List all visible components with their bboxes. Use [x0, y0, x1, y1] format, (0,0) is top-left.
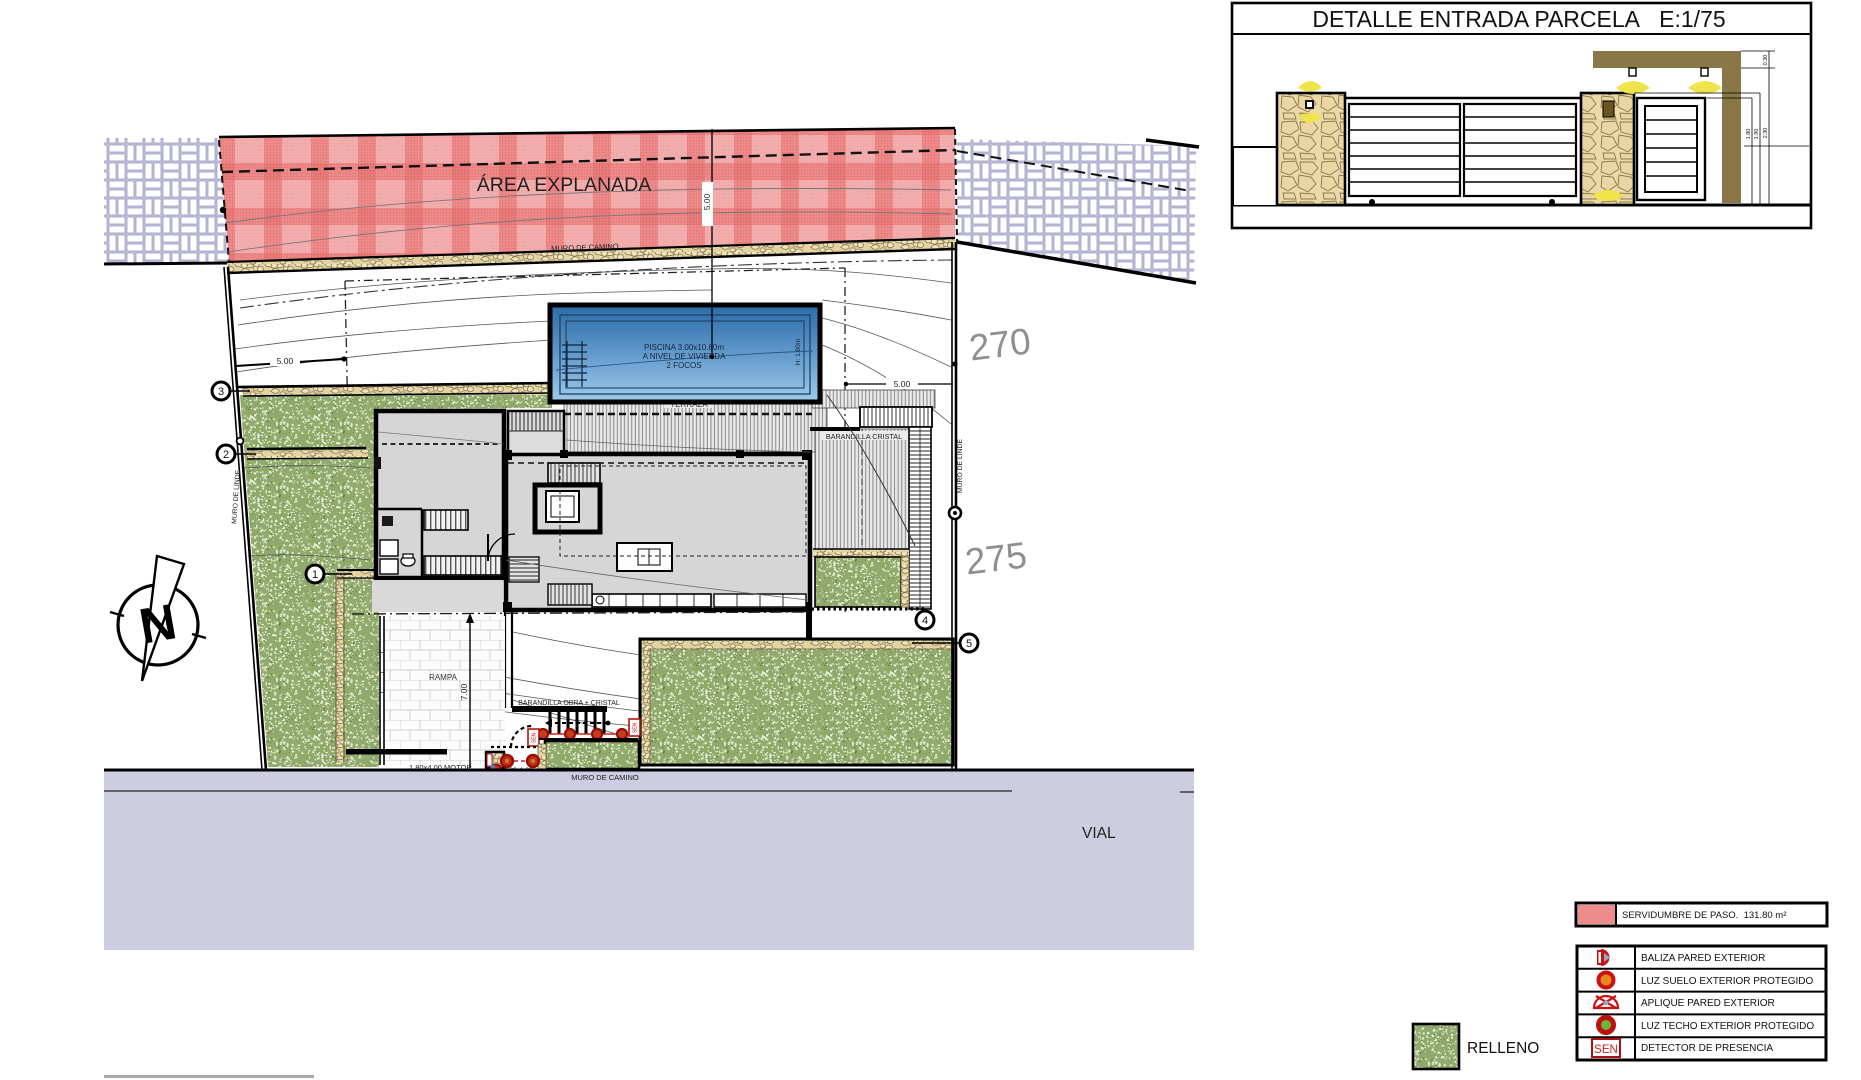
svg-text:270: 270	[967, 320, 1033, 368]
svg-text:7.00: 7.00	[459, 683, 469, 700]
svg-text:MURO DE LINDE: MURO DE LINDE	[231, 469, 242, 524]
svg-text:1.90: 1.90	[1754, 129, 1760, 140]
svg-text:H: 1.80m: H: 1.80m	[795, 339, 802, 365]
svg-text:DETALLE ENTRADA PARCELA E:1/: DETALLE ENTRADA PARCELA E:1/75	[1312, 6, 1725, 32]
svg-text:RELLENO: RELLENO	[1467, 1040, 1539, 1057]
svg-text:BALIZA PARED EXTERIOR: BALIZA PARED EXTERIOR	[1641, 953, 1765, 964]
svg-text:5.00: 5.00	[702, 193, 712, 210]
svg-text:SEN: SEN	[633, 722, 639, 733]
svg-text:BARANDILLA OBRA + CRISTAL: BARANDILLA OBRA + CRISTAL	[518, 700, 620, 707]
svg-text:RAMPA: RAMPA	[429, 673, 458, 682]
svg-text:0.30: 0.30	[1763, 55, 1769, 66]
svg-text:275: 275	[963, 534, 1029, 582]
svg-text:VIAL: VIAL	[1082, 825, 1116, 842]
svg-text:2.30: 2.30	[1763, 128, 1769, 139]
svg-text:MURO DE LINDE: MURO DE LINDE	[957, 439, 964, 493]
svg-text:SEN: SEN	[1594, 1044, 1618, 1056]
svg-text:BARANDILLA CRISTAL: BARANDILLA CRISTAL	[826, 432, 902, 441]
svg-text:SERVIDUMBRE DE PASO. 131.80 m: SERVIDUMBRE DE PASO. 131.80 m²	[1622, 910, 1786, 921]
svg-text:SEN: SEN	[532, 732, 538, 743]
svg-text:1.80: 1.80	[1746, 129, 1752, 140]
svg-text:5.00: 5.00	[894, 379, 911, 389]
svg-text:2: 2	[223, 449, 229, 461]
svg-text:3: 3	[218, 386, 224, 398]
svg-text:5: 5	[966, 638, 972, 650]
svg-text:MURO DE CAMINO: MURO DE CAMINO	[571, 773, 639, 782]
svg-text:APLIQUE PARED EXTERIOR: APLIQUE PARED EXTERIOR	[1641, 998, 1775, 1009]
svg-text:LUZ TECHO EXTERIOR PROTEGIDO: LUZ TECHO EXTERIOR PROTEGIDO	[1641, 1021, 1814, 1032]
svg-text:N: N	[135, 593, 180, 654]
svg-text:5.00: 5.00	[277, 356, 294, 366]
svg-text:1: 1	[312, 569, 318, 581]
svg-text:2 FOCOS: 2 FOCOS	[666, 361, 701, 370]
svg-text:DETECTOR DE PRESENCIA: DETECTOR DE PRESENCIA	[1641, 1043, 1773, 1054]
svg-text:4: 4	[922, 615, 928, 627]
svg-text:ÁREA EXPLANADA: ÁREA EXPLANADA	[477, 173, 652, 196]
svg-text:LUZ SUELO EXTERIOR PROTEGIDO: LUZ SUELO EXTERIOR PROTEGIDO	[1641, 976, 1813, 987]
